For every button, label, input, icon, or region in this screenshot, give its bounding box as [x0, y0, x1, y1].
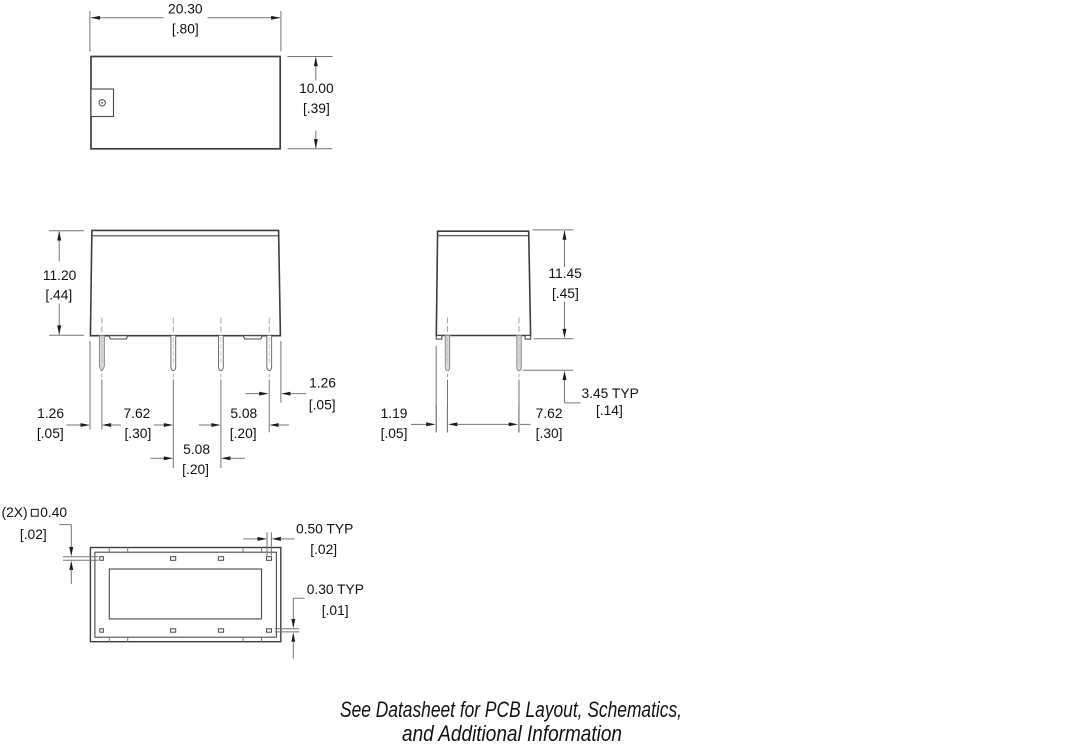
svg-text:[.01]: [.01] — [322, 603, 349, 618]
svg-text:[.20]: [.20] — [182, 462, 209, 477]
svg-text:(2X): (2X) — [2, 505, 28, 520]
svg-text:0.40: 0.40 — [40, 505, 67, 520]
svg-text:[.44]: [.44] — [45, 288, 72, 303]
svg-text:5.08: 5.08 — [183, 442, 210, 457]
svg-text:[.02]: [.02] — [310, 542, 337, 557]
svg-text:0.50 TYP: 0.50 TYP — [296, 521, 353, 536]
svg-text:[.45]: [.45] — [552, 286, 579, 301]
svg-text:1.26: 1.26 — [37, 406, 64, 421]
svg-text:0.30 TYP: 0.30 TYP — [307, 582, 364, 597]
svg-text:1.26: 1.26 — [309, 376, 336, 391]
svg-text:11.20: 11.20 — [43, 268, 77, 283]
svg-text:20.30: 20.30 — [168, 2, 203, 17]
svg-text:[.80]: [.80] — [172, 21, 199, 36]
svg-text:1.19: 1.19 — [381, 406, 408, 421]
svg-text:[.20]: [.20] — [230, 426, 257, 441]
svg-text:7.62: 7.62 — [123, 406, 150, 421]
svg-text:[.30]: [.30] — [536, 426, 563, 441]
svg-text:[.39]: [.39] — [303, 101, 330, 116]
svg-text:5.08: 5.08 — [230, 406, 257, 421]
svg-text:[.14]: [.14] — [596, 403, 623, 418]
svg-text:[.05]: [.05] — [37, 426, 64, 441]
svg-text:[.05]: [.05] — [381, 426, 408, 441]
svg-text:and Additional Information: and Additional Information — [402, 721, 622, 746]
svg-text:3.45 TYP: 3.45 TYP — [582, 386, 639, 401]
svg-text:11.45: 11.45 — [548, 266, 582, 281]
svg-text:7.62: 7.62 — [536, 406, 563, 421]
svg-text:[.05]: [.05] — [309, 397, 336, 412]
svg-text:10.00: 10.00 — [299, 81, 334, 96]
svg-text:[.30]: [.30] — [124, 426, 151, 441]
svg-text:[.02]: [.02] — [20, 527, 47, 542]
svg-text:See Datasheet for PCB Layout,: See Datasheet for PCB Layout, Schematics… — [340, 697, 682, 722]
